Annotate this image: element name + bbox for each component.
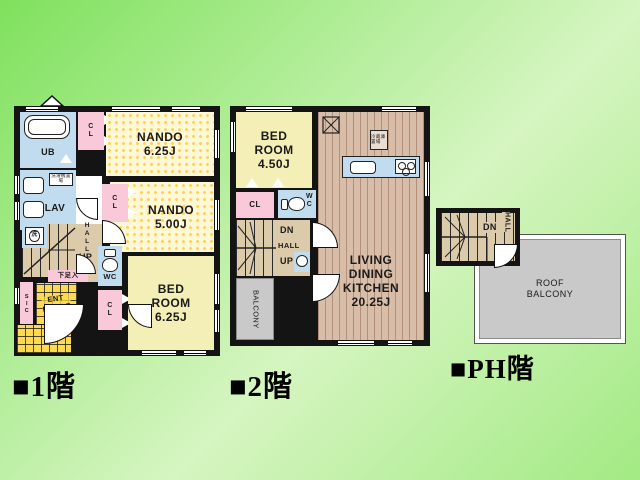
nando2-area: 5.00J bbox=[155, 217, 187, 231]
sink-icon bbox=[23, 201, 44, 218]
floorplan-page: { "title_labels": { "floor1": "■1階", "fl… bbox=[0, 0, 640, 480]
lavatory-room: 洗濯機置場 LAV bbox=[20, 170, 76, 230]
wc1-room: WC bbox=[98, 246, 122, 286]
window bbox=[172, 107, 200, 111]
vent-x-icon bbox=[322, 116, 340, 134]
closet-nando: C L bbox=[102, 184, 128, 222]
ub-label: UB bbox=[41, 147, 55, 158]
window bbox=[425, 162, 429, 196]
stove-icon bbox=[395, 159, 416, 174]
closet-door-icon bbox=[128, 187, 137, 197]
closet2-label: CL bbox=[249, 200, 260, 209]
basin-icon bbox=[296, 255, 308, 267]
hall-ph-label: HALL bbox=[502, 212, 510, 232]
window bbox=[215, 274, 219, 304]
window bbox=[338, 341, 374, 345]
closet-top: C L bbox=[78, 112, 104, 150]
unit-bath-room: UB bbox=[20, 112, 76, 168]
nando1-area: 6.25J bbox=[144, 144, 176, 158]
nando1-name: NANDO bbox=[137, 130, 183, 144]
dn-ph-label: DN bbox=[482, 222, 498, 233]
wc1-label: WC bbox=[103, 273, 116, 282]
kitchen-sink-icon bbox=[350, 161, 376, 174]
closet-bed: C L bbox=[98, 290, 122, 330]
refrigerator-label: 冷蔵庫置場 bbox=[371, 135, 387, 145]
closet2: CL bbox=[236, 192, 274, 218]
window bbox=[231, 122, 235, 152]
toilet-icon bbox=[102, 258, 118, 272]
window bbox=[15, 176, 19, 194]
hall2-label: HALL bbox=[278, 242, 300, 251]
entrance-door-arc bbox=[44, 304, 84, 344]
bedroom1-room: BED ROOM 6.25J bbox=[128, 256, 214, 350]
window bbox=[112, 107, 160, 111]
vent-triangle-icon bbox=[40, 95, 64, 107]
floorPH-plan: ROOF BALCONY DN HALL bbox=[436, 208, 626, 346]
window bbox=[215, 200, 219, 230]
ldk-area: 20.25J bbox=[343, 295, 399, 309]
floor1-title: ■1階 bbox=[12, 363, 76, 405]
toilet-icon bbox=[288, 197, 305, 211]
washer-label: 洗 bbox=[29, 230, 39, 241]
floor2-title: ■2階 bbox=[229, 363, 293, 405]
staircase2 bbox=[236, 220, 276, 276]
floorPH-title: ■PH階 bbox=[450, 347, 535, 386]
washer-place-box: 洗濯機置場 bbox=[49, 173, 73, 186]
ldk-name: LIVING DINING KITCHEN bbox=[343, 253, 399, 295]
floor1-plan: UB C L NANDO 6.25J 洗濯機置場 LAV NANDO 5.00J… bbox=[14, 106, 220, 356]
roof-balcony-label: ROOF BALCONY bbox=[527, 278, 574, 299]
window bbox=[388, 341, 412, 345]
window bbox=[246, 107, 292, 111]
sic-closet: SIC bbox=[20, 282, 33, 326]
nando1-room: NANDO 6.25J bbox=[106, 112, 214, 176]
window bbox=[15, 202, 19, 220]
washing-machine-icon: 洗 bbox=[25, 227, 44, 245]
basin-space bbox=[294, 252, 310, 272]
balcony2: BALCONY bbox=[236, 278, 274, 340]
closet-label: C L bbox=[88, 123, 93, 140]
sink-icon bbox=[23, 177, 44, 194]
refrigerator-icon: 冷蔵庫置場 bbox=[370, 130, 388, 150]
window bbox=[425, 254, 429, 292]
closet-label: C L bbox=[112, 195, 117, 212]
closet-label: C L bbox=[107, 302, 112, 319]
stair-fan-icon bbox=[236, 220, 276, 276]
lav-label: LAV bbox=[45, 203, 65, 215]
bedroom1-area: 6.25J bbox=[155, 310, 187, 324]
dn2-label: DN bbox=[280, 225, 294, 236]
up2-label: UP bbox=[280, 256, 293, 267]
washer-space: 洗 bbox=[22, 224, 47, 248]
nando2-name: NANDO bbox=[148, 203, 194, 217]
floor2-plan: BED ROOM 4.50J LIVING DINING KITCHEN 20.… bbox=[230, 106, 430, 346]
window bbox=[142, 351, 176, 355]
toilet-icon bbox=[281, 199, 288, 210]
window bbox=[184, 351, 206, 355]
bathtub-icon bbox=[24, 115, 70, 139]
wc2-label: W C bbox=[306, 193, 313, 210]
bedroom2-room: BED ROOM 4.50J bbox=[236, 112, 312, 188]
window bbox=[215, 310, 219, 332]
toilet-icon bbox=[104, 249, 116, 257]
wc2-room: W C bbox=[278, 190, 316, 218]
kitchen-counter bbox=[342, 156, 420, 178]
sic-label: SIC bbox=[23, 294, 29, 315]
window bbox=[26, 107, 58, 111]
hall1-label: HALL bbox=[83, 222, 91, 254]
washer-place-label: 洗濯機置場 bbox=[50, 174, 72, 184]
closet-door-icon bbox=[128, 208, 137, 218]
window bbox=[15, 288, 19, 304]
window bbox=[215, 130, 219, 158]
bedroom1-name: BED ROOM bbox=[152, 282, 191, 310]
bedroom2-area: 4.50J bbox=[258, 157, 290, 171]
bedroom2-name: BED ROOM bbox=[255, 129, 294, 157]
balcony2-label: BALCONY bbox=[251, 290, 260, 329]
closet-door-icon bbox=[272, 178, 284, 187]
window bbox=[382, 107, 416, 111]
door-swing-icon bbox=[60, 154, 72, 163]
closet-door-icon bbox=[246, 178, 258, 187]
